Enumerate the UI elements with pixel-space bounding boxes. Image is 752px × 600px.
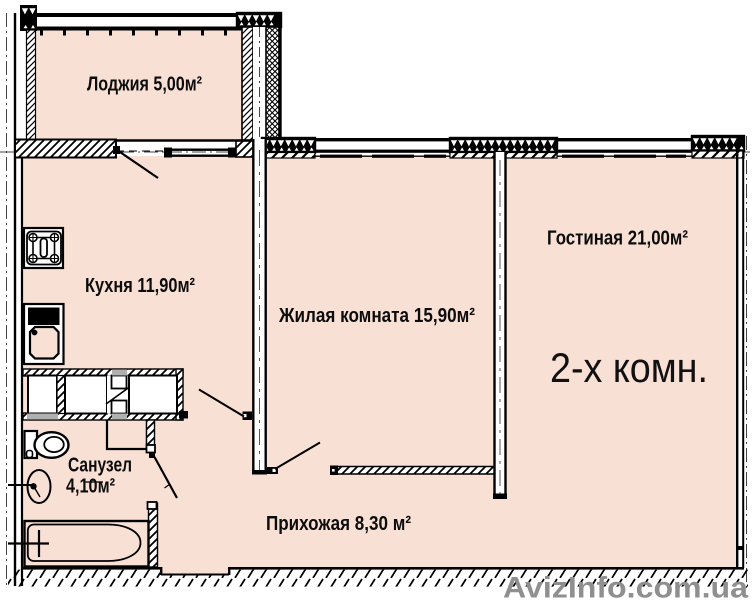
svg-text:Кухня 11,90м²: Кухня 11,90м² [85,275,195,297]
svg-text:4,10м²: 4,10м² [66,476,115,498]
svg-text:Жилая комната 15,90м²: Жилая комната 15,90м² [278,305,475,327]
svg-text:Гостиная 21,00м²: Гостиная 21,00м² [547,228,688,250]
svg-text:Прихожая 8,30 м²: Прихожая 8,30 м² [266,513,411,535]
svg-text:Лоджия 5,00м²: Лоджия 5,00м² [87,74,202,96]
svg-text:Санузел: Санузел [68,455,132,477]
svg-text:2-х комн.: 2-х комн. [550,344,708,391]
svg-text:AvizInfo.com.ua: AvizInfo.com.ua [503,572,748,600]
